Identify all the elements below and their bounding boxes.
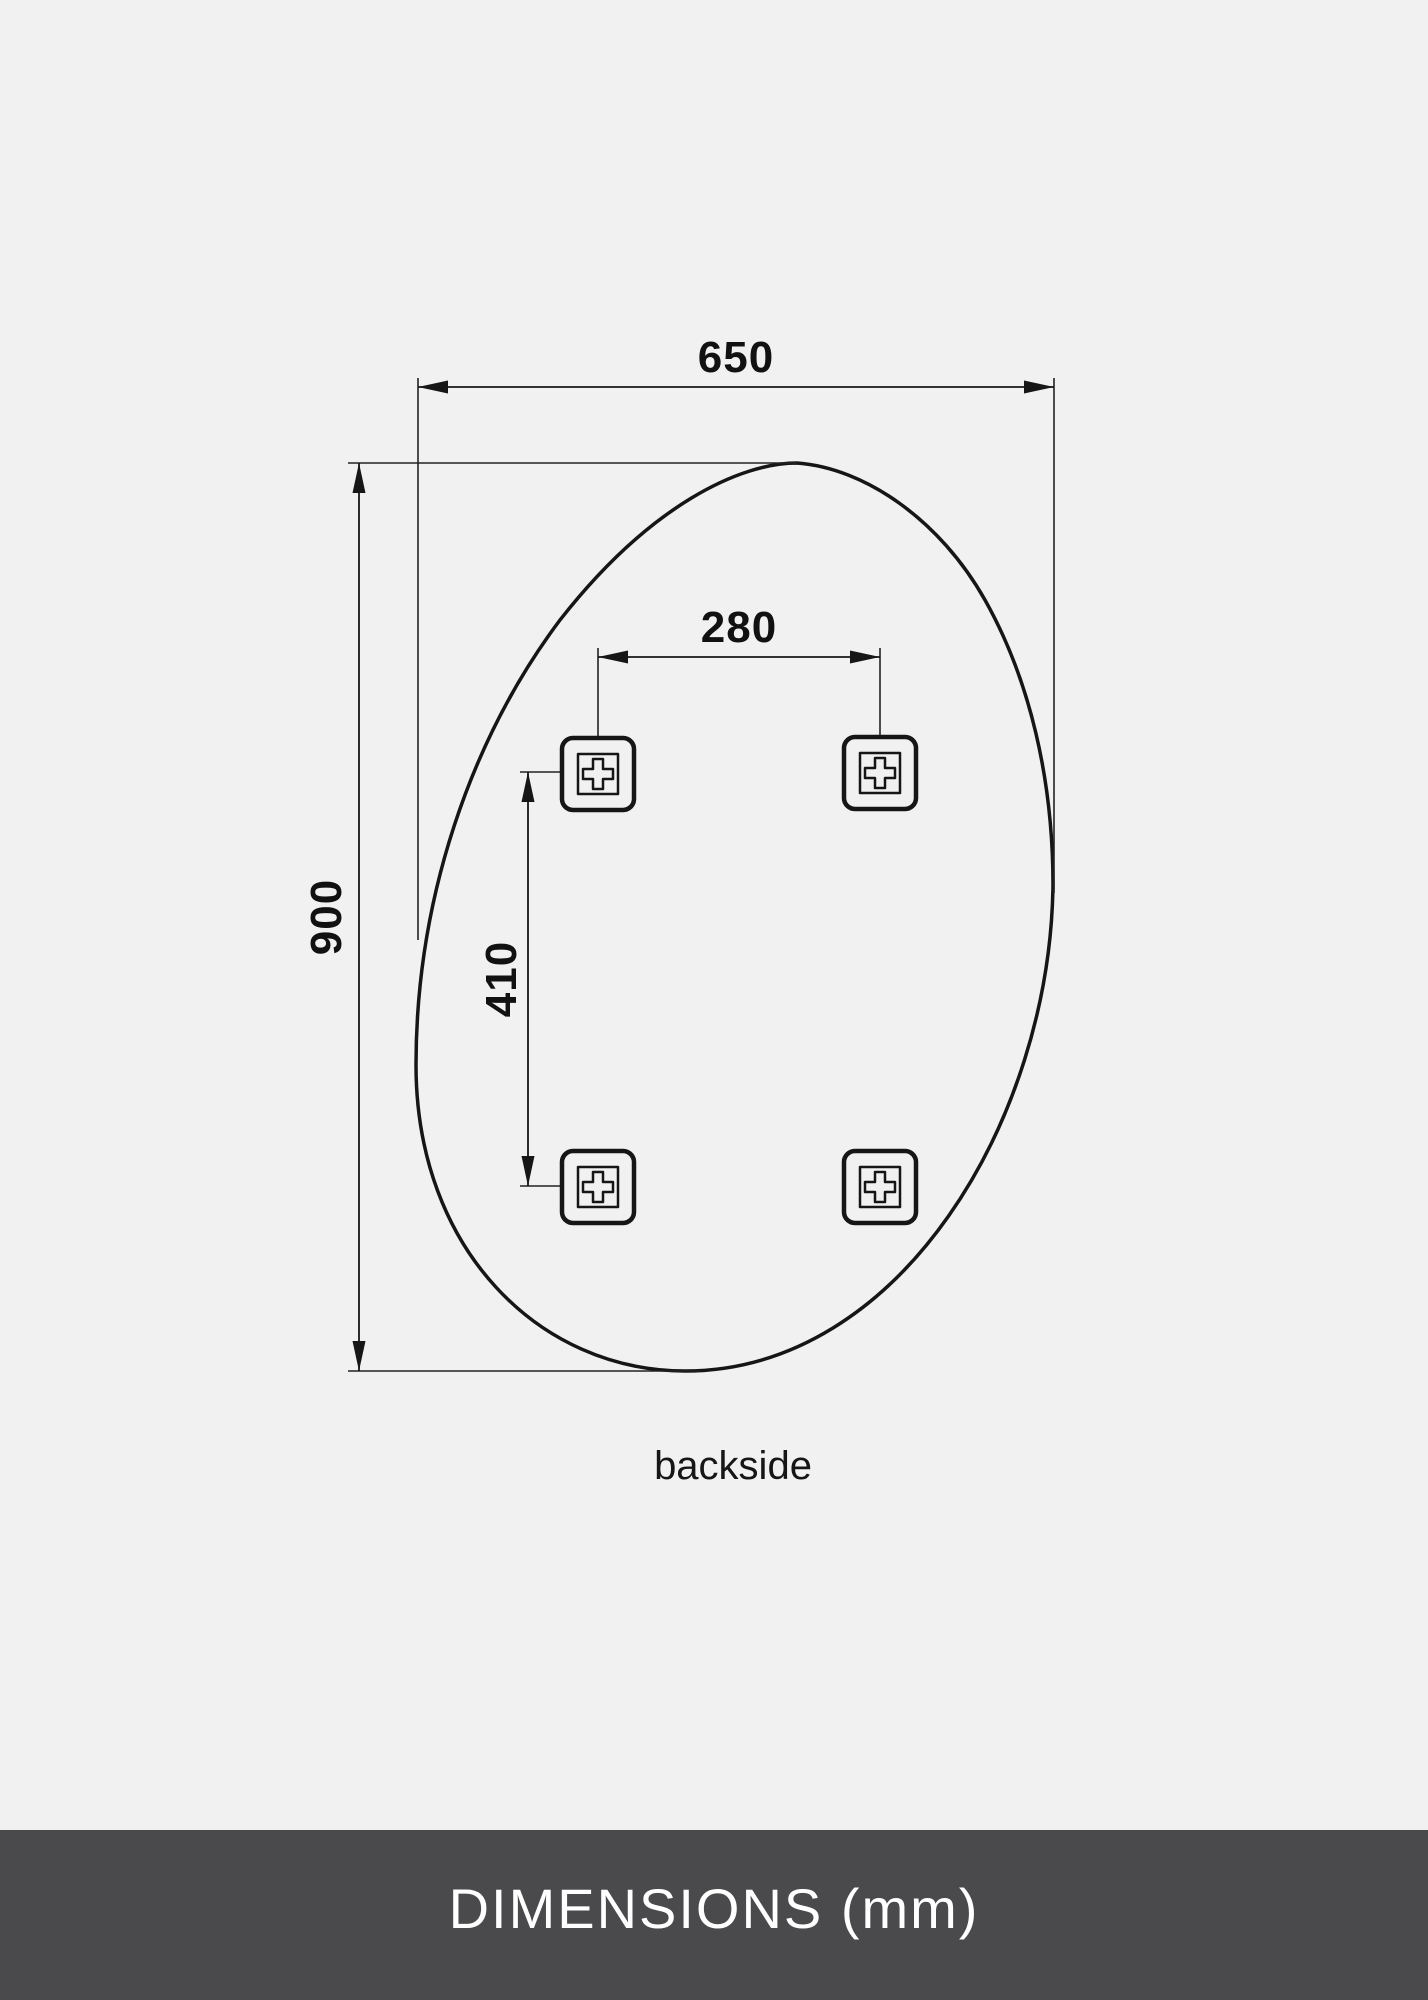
footer-title: DIMENSIONS (mm): [449, 1876, 980, 1941]
mounting-bracket-icon: [844, 1151, 916, 1223]
width-dimension-label: 650: [418, 334, 1054, 382]
bracket-spacing-horizontal-label: 280: [598, 604, 880, 652]
extension-lines: [348, 378, 1054, 1371]
backside-caption: backside: [533, 1444, 933, 1488]
dimension-diagram-page: 650 280 900 410 backside DIMENSIONS (mm): [0, 0, 1428, 2000]
height-dimension-label: 900: [303, 847, 351, 987]
dimension-arrowheads: [353, 381, 1055, 1372]
mounting-bracket-icon: [844, 737, 916, 809]
technical-drawing: [0, 0, 1428, 1832]
dimension-lines: [359, 387, 1054, 1371]
mounting-bracket-icon: [562, 1151, 634, 1223]
mounting-brackets: [562, 737, 916, 1223]
mounting-bracket-icon: [562, 738, 634, 810]
footer-bar: DIMENSIONS (mm): [0, 1830, 1428, 2000]
bracket-spacing-vertical-label: 410: [478, 909, 526, 1049]
